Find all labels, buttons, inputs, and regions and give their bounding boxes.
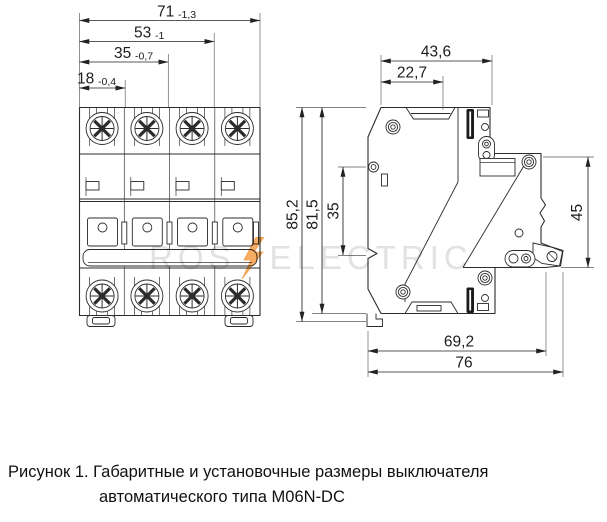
dim-one-pole-tol: -0,4 [98,76,116,88]
front-view-drawing [80,108,261,327]
dim-din-window: 35 [326,202,343,219]
dim-top-depth: 43,6 [421,44,451,61]
dim-max-depth: 76 [455,355,472,372]
handle-bar [83,250,257,267]
caption-line-2: автоматического типа M06N-DC [8,485,488,510]
technical-drawing-page: 71 -1,3 53 -1 35 -0,7 18 -0,4 43,6 22,7 … [0,0,607,522]
dim-total-width-tol: -1,3 [178,9,196,21]
dim-right-height: 45 [569,204,586,221]
caption-line-1: Рисунок 1. Габаритные и установочные раз… [8,460,488,485]
dim-three-pole: 53 [134,25,151,42]
dim-bottom-depth: 69,2 [444,334,474,351]
dim-three-pole-tol: -1 [155,30,164,42]
dim-total-height: 85,2 [285,199,302,229]
dim-two-pole-tol: -0,7 [135,51,153,63]
figure-caption: Рисунок 1. Габаритные и установочные раз… [8,460,488,510]
dim-body-height: 81,5 [305,199,322,229]
bottom-tabs [87,316,253,327]
dimension-drawing: 71 -1,3 53 -1 35 -0,7 18 -0,4 43,6 22,7 … [0,0,607,445]
dim-front-depth: 22,7 [397,65,427,82]
dim-two-pole: 35 [114,45,131,62]
dim-total-width: 71 [157,4,174,21]
side-view-drawing [367,108,563,327]
dim-one-pole: 18 [77,71,94,88]
